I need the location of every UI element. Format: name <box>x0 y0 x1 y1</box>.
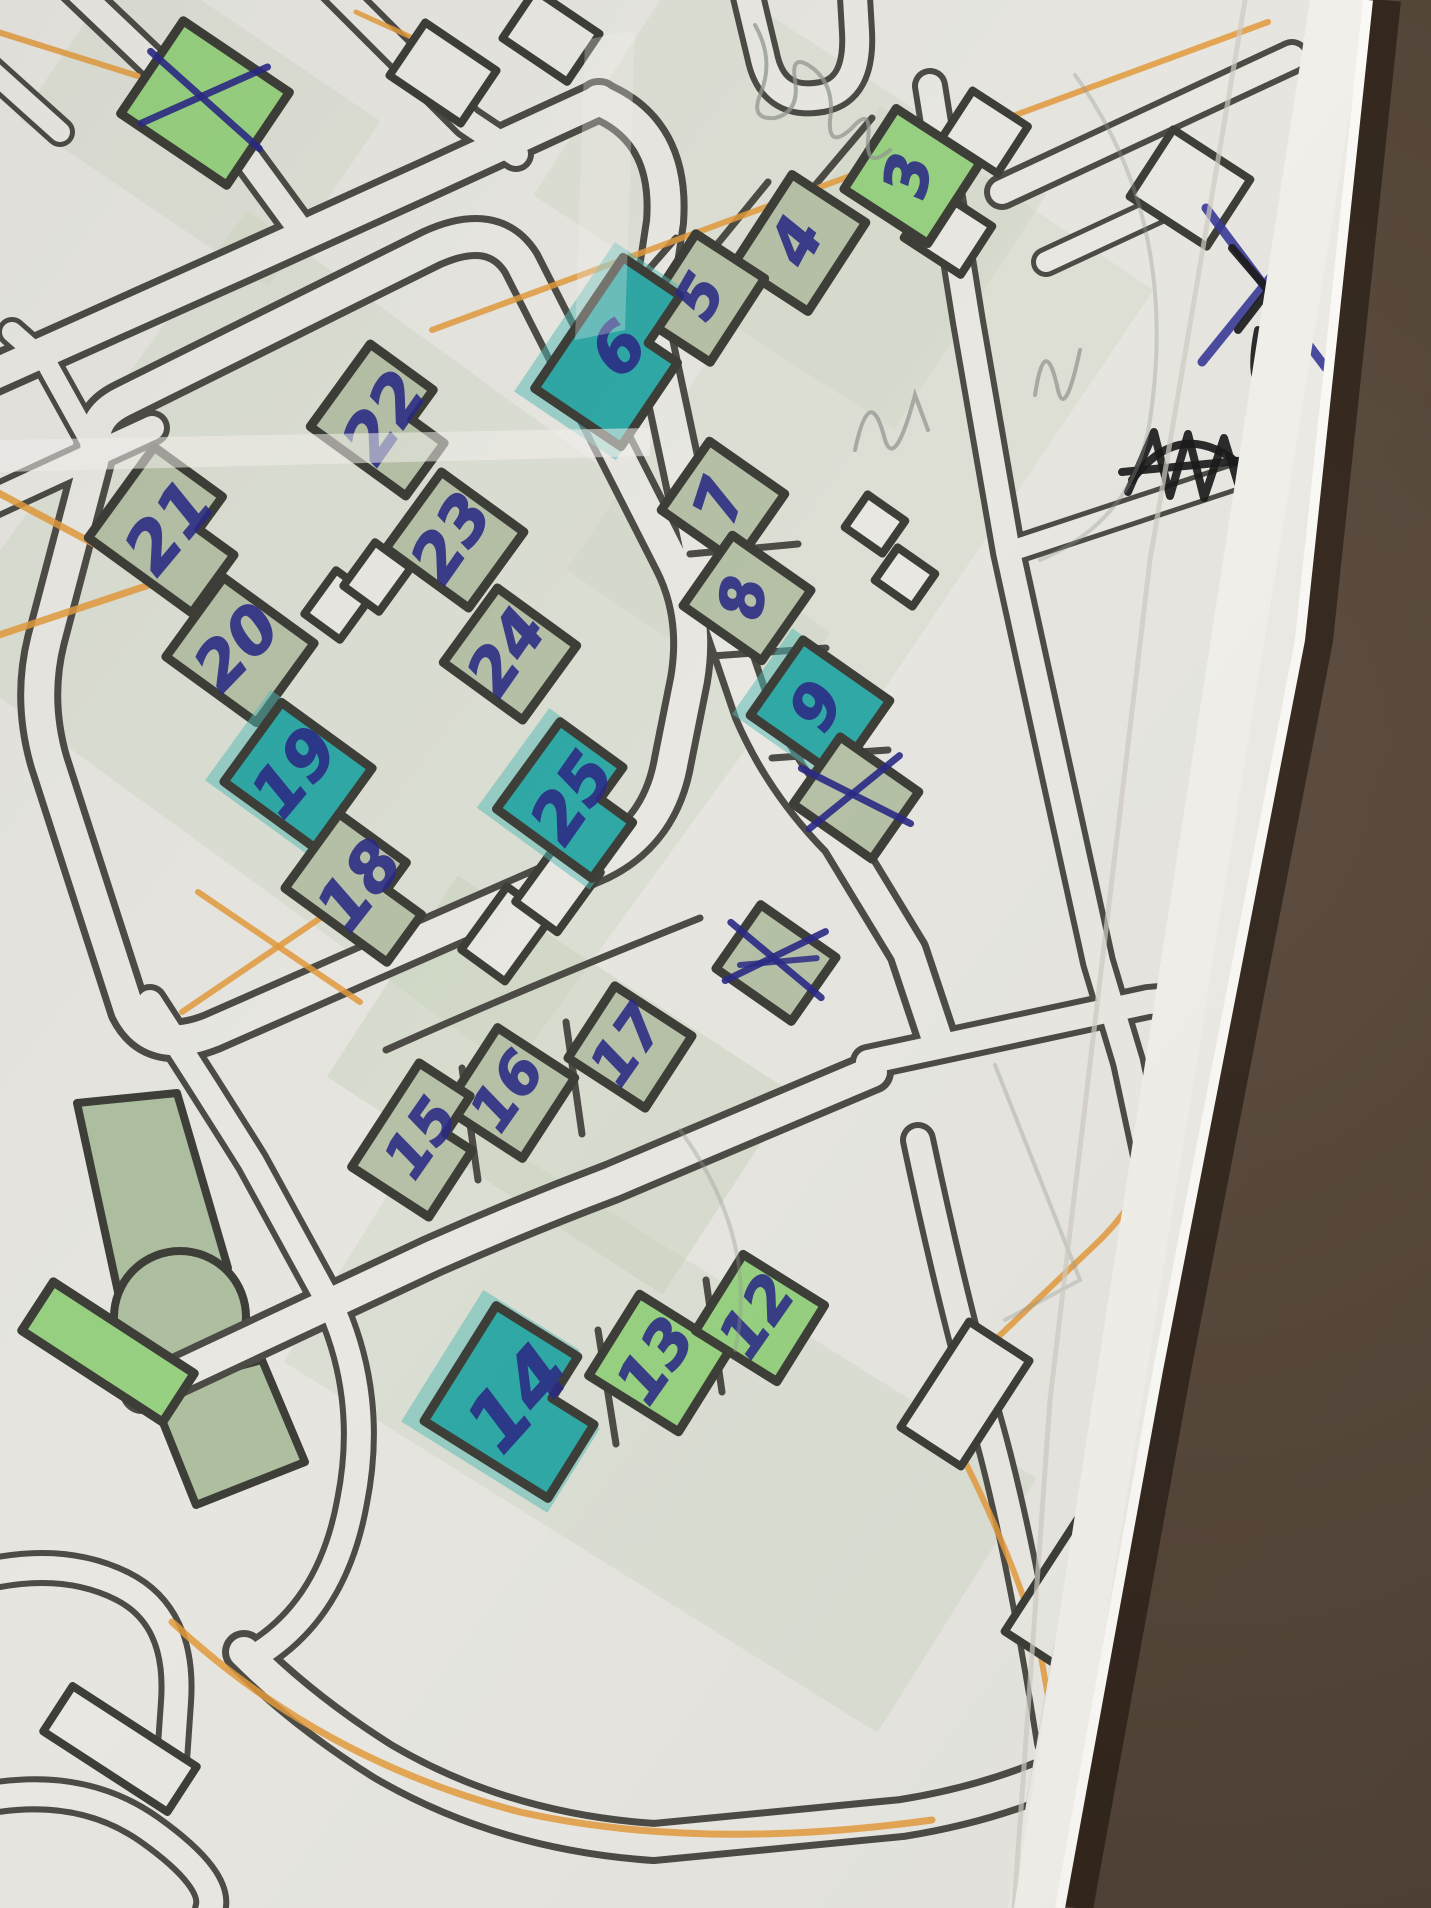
map-canvas: 34567892221232024192518171615141312ооо30… <box>0 0 1431 1908</box>
photo-vignette <box>0 0 1431 1908</box>
photo-of-paper-map: 34567892221232024192518171615141312ооо30… <box>0 0 1431 1908</box>
